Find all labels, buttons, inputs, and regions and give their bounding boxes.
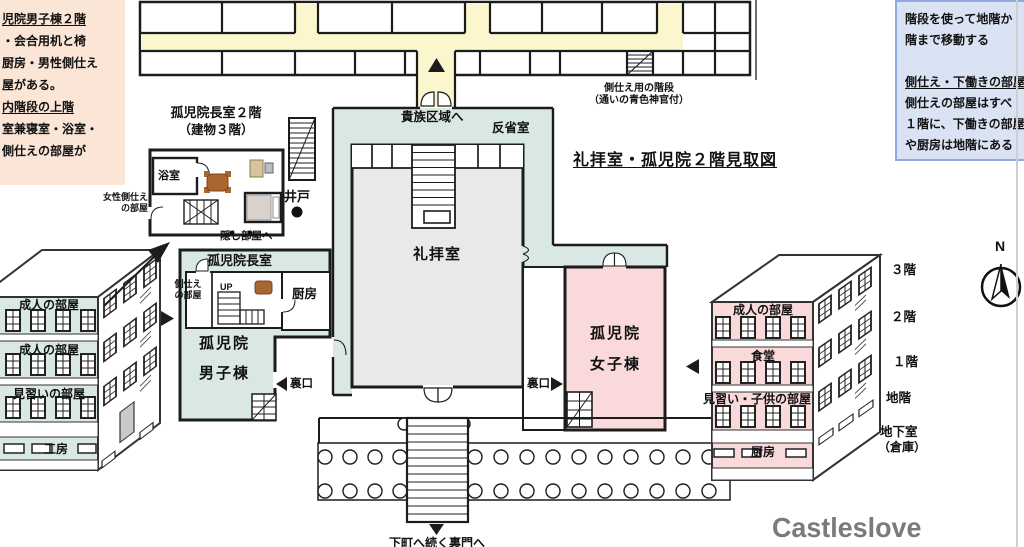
backdoor-right-label: 裏口 <box>527 378 550 390</box>
floor-scale-basement-line1: 地下室 <box>880 426 918 439</box>
note-boys-dorm: 児院男子棟２階 ・会合用机と椅 厨房・男性側仕え 屋がある。 内階段の上階 室兼… <box>0 0 125 185</box>
chapel-label: 礼拝室 <box>413 247 461 263</box>
boys-floor-label-adults-2: 成人の部屋 <box>4 344 94 357</box>
floorplan-page: 児院男子棟２階 ・会合用机と椅 厨房・男性側仕え 屋がある。 内階段の上階 室兼… <box>0 0 1024 547</box>
floor-scale-3f: ３階 <box>891 264 916 277</box>
boys-floor-label-apprentice: 見習いの部屋 <box>0 388 98 401</box>
down-arrow-icon <box>429 524 444 535</box>
floor-scale-2f: ２階 <box>891 311 916 324</box>
backdoor-left-arrow-icon <box>276 377 287 391</box>
page-title: 礼拝室・孤児院２階見取図 <box>573 153 777 170</box>
hidden-room-label: 隠し部屋へ <box>220 231 273 242</box>
meeting-table <box>204 171 231 193</box>
forecourt <box>318 418 730 535</box>
servant-room-label-line2: の部屋 <box>166 291 210 300</box>
note-heading: 児院男子棟２階 <box>2 8 125 30</box>
note-line: 側仕えの部屋が <box>2 140 125 162</box>
detail-title-line2: （建物３階） <box>148 124 284 137</box>
compass-icon <box>982 264 1020 306</box>
female-servant-label-line2: の部屋 <box>100 204 148 213</box>
girls-building-3d <box>712 255 880 480</box>
gate-label: 下町へ続く裏門へ <box>378 537 496 547</box>
note-line: 室兼寝室・浴室・ <box>2 118 125 140</box>
small-table <box>255 281 272 294</box>
reflection-room-label: 反省室 <box>492 122 530 135</box>
note-line: １階に、下働きの部屋 <box>905 114 1024 135</box>
up-label: UP <box>220 283 233 292</box>
chapel-room <box>352 145 529 402</box>
floor-scale-1f: １階 <box>893 356 918 369</box>
girls-floor-label-dining: 食堂 <box>717 350 809 363</box>
boys-floor-label-workshop: 工房 <box>44 443 68 456</box>
boys-wing-label-line1: 孤児院 <box>199 336 250 352</box>
female-servant-label-line1: 女性側仕え <box>100 193 148 202</box>
boys-building-3d <box>0 250 160 470</box>
grand-stairs-glyph <box>407 418 468 522</box>
boys-stairs-glyph <box>252 394 276 420</box>
girls-wing-label-line2: 女子棟 <box>590 357 641 373</box>
girls-wing-label-line1: 孤児院 <box>590 326 641 342</box>
floorplan-canvas <box>0 0 1024 547</box>
window-edge-line <box>1016 0 1018 547</box>
right-arrow-icon <box>161 311 174 326</box>
boys-floor-label-adults-1: 成人の部屋 <box>4 299 94 312</box>
note-heading: 内階段の上階 <box>2 96 125 118</box>
floor-scale-basement-line2: （倉庫） <box>878 441 926 454</box>
compass-north-label: N <box>995 239 1005 254</box>
girls-stairs-glyph <box>567 392 592 427</box>
left-arrow-icon <box>686 359 699 374</box>
girls-floor-label-children: 見習い・子供の部屋 <box>697 393 817 406</box>
note-heading: 側仕え・下働きの部屋 <box>905 72 1024 93</box>
note-line: 屋がある。 <box>2 74 125 96</box>
note-line: 階まで移動する <box>905 30 1024 51</box>
director-office-label: 孤児院長室 <box>207 254 272 268</box>
servant-stairs-label-line1: 側仕え用の階段 <box>578 84 700 95</box>
note-line: 厨房・男性側仕え <box>2 52 125 74</box>
watermark: Castleslove <box>772 512 921 544</box>
kitchen-2f-label: 厨房 <box>292 288 317 301</box>
inner-stairs-glyph <box>184 200 218 224</box>
detail-title-line1: 孤児院長室２階 <box>148 106 284 120</box>
note-line: ・会合用机と椅 <box>2 30 125 52</box>
backdoor-left-label: 裏口 <box>290 378 313 390</box>
note-line: や厨房は地階にある <box>905 135 1024 156</box>
servant-room-label-line1: 側仕え <box>166 280 210 289</box>
note-line: 階段を使って地階か <box>905 9 1024 30</box>
outside-stairs-glyph <box>289 118 315 180</box>
noble-area-label: 貴族区域へ <box>401 111 464 124</box>
girls-floor-label-kitchen: 厨房 <box>751 446 775 459</box>
floor-scale-ground-basement: 地階 <box>886 392 911 405</box>
servant-stairs-label-line2: （通いの青色神官付） <box>578 96 700 107</box>
girls-floor-label-adults: 成人の部屋 <box>717 304 809 317</box>
boys-wing-label-line2: 男子棟 <box>199 366 250 382</box>
note-line: 側仕えの部屋はすべ <box>905 93 1024 114</box>
bath-label: 浴室 <box>158 171 180 183</box>
bed <box>245 193 281 222</box>
note-servants: 階段を使って地階か 階まで移動する 側仕え・下働きの部屋 側仕えの部屋はすべ １… <box>895 0 1024 161</box>
servant-stairs-glyph <box>628 52 652 74</box>
well-label: 井戸 <box>284 190 310 204</box>
well-dot <box>292 207 303 218</box>
